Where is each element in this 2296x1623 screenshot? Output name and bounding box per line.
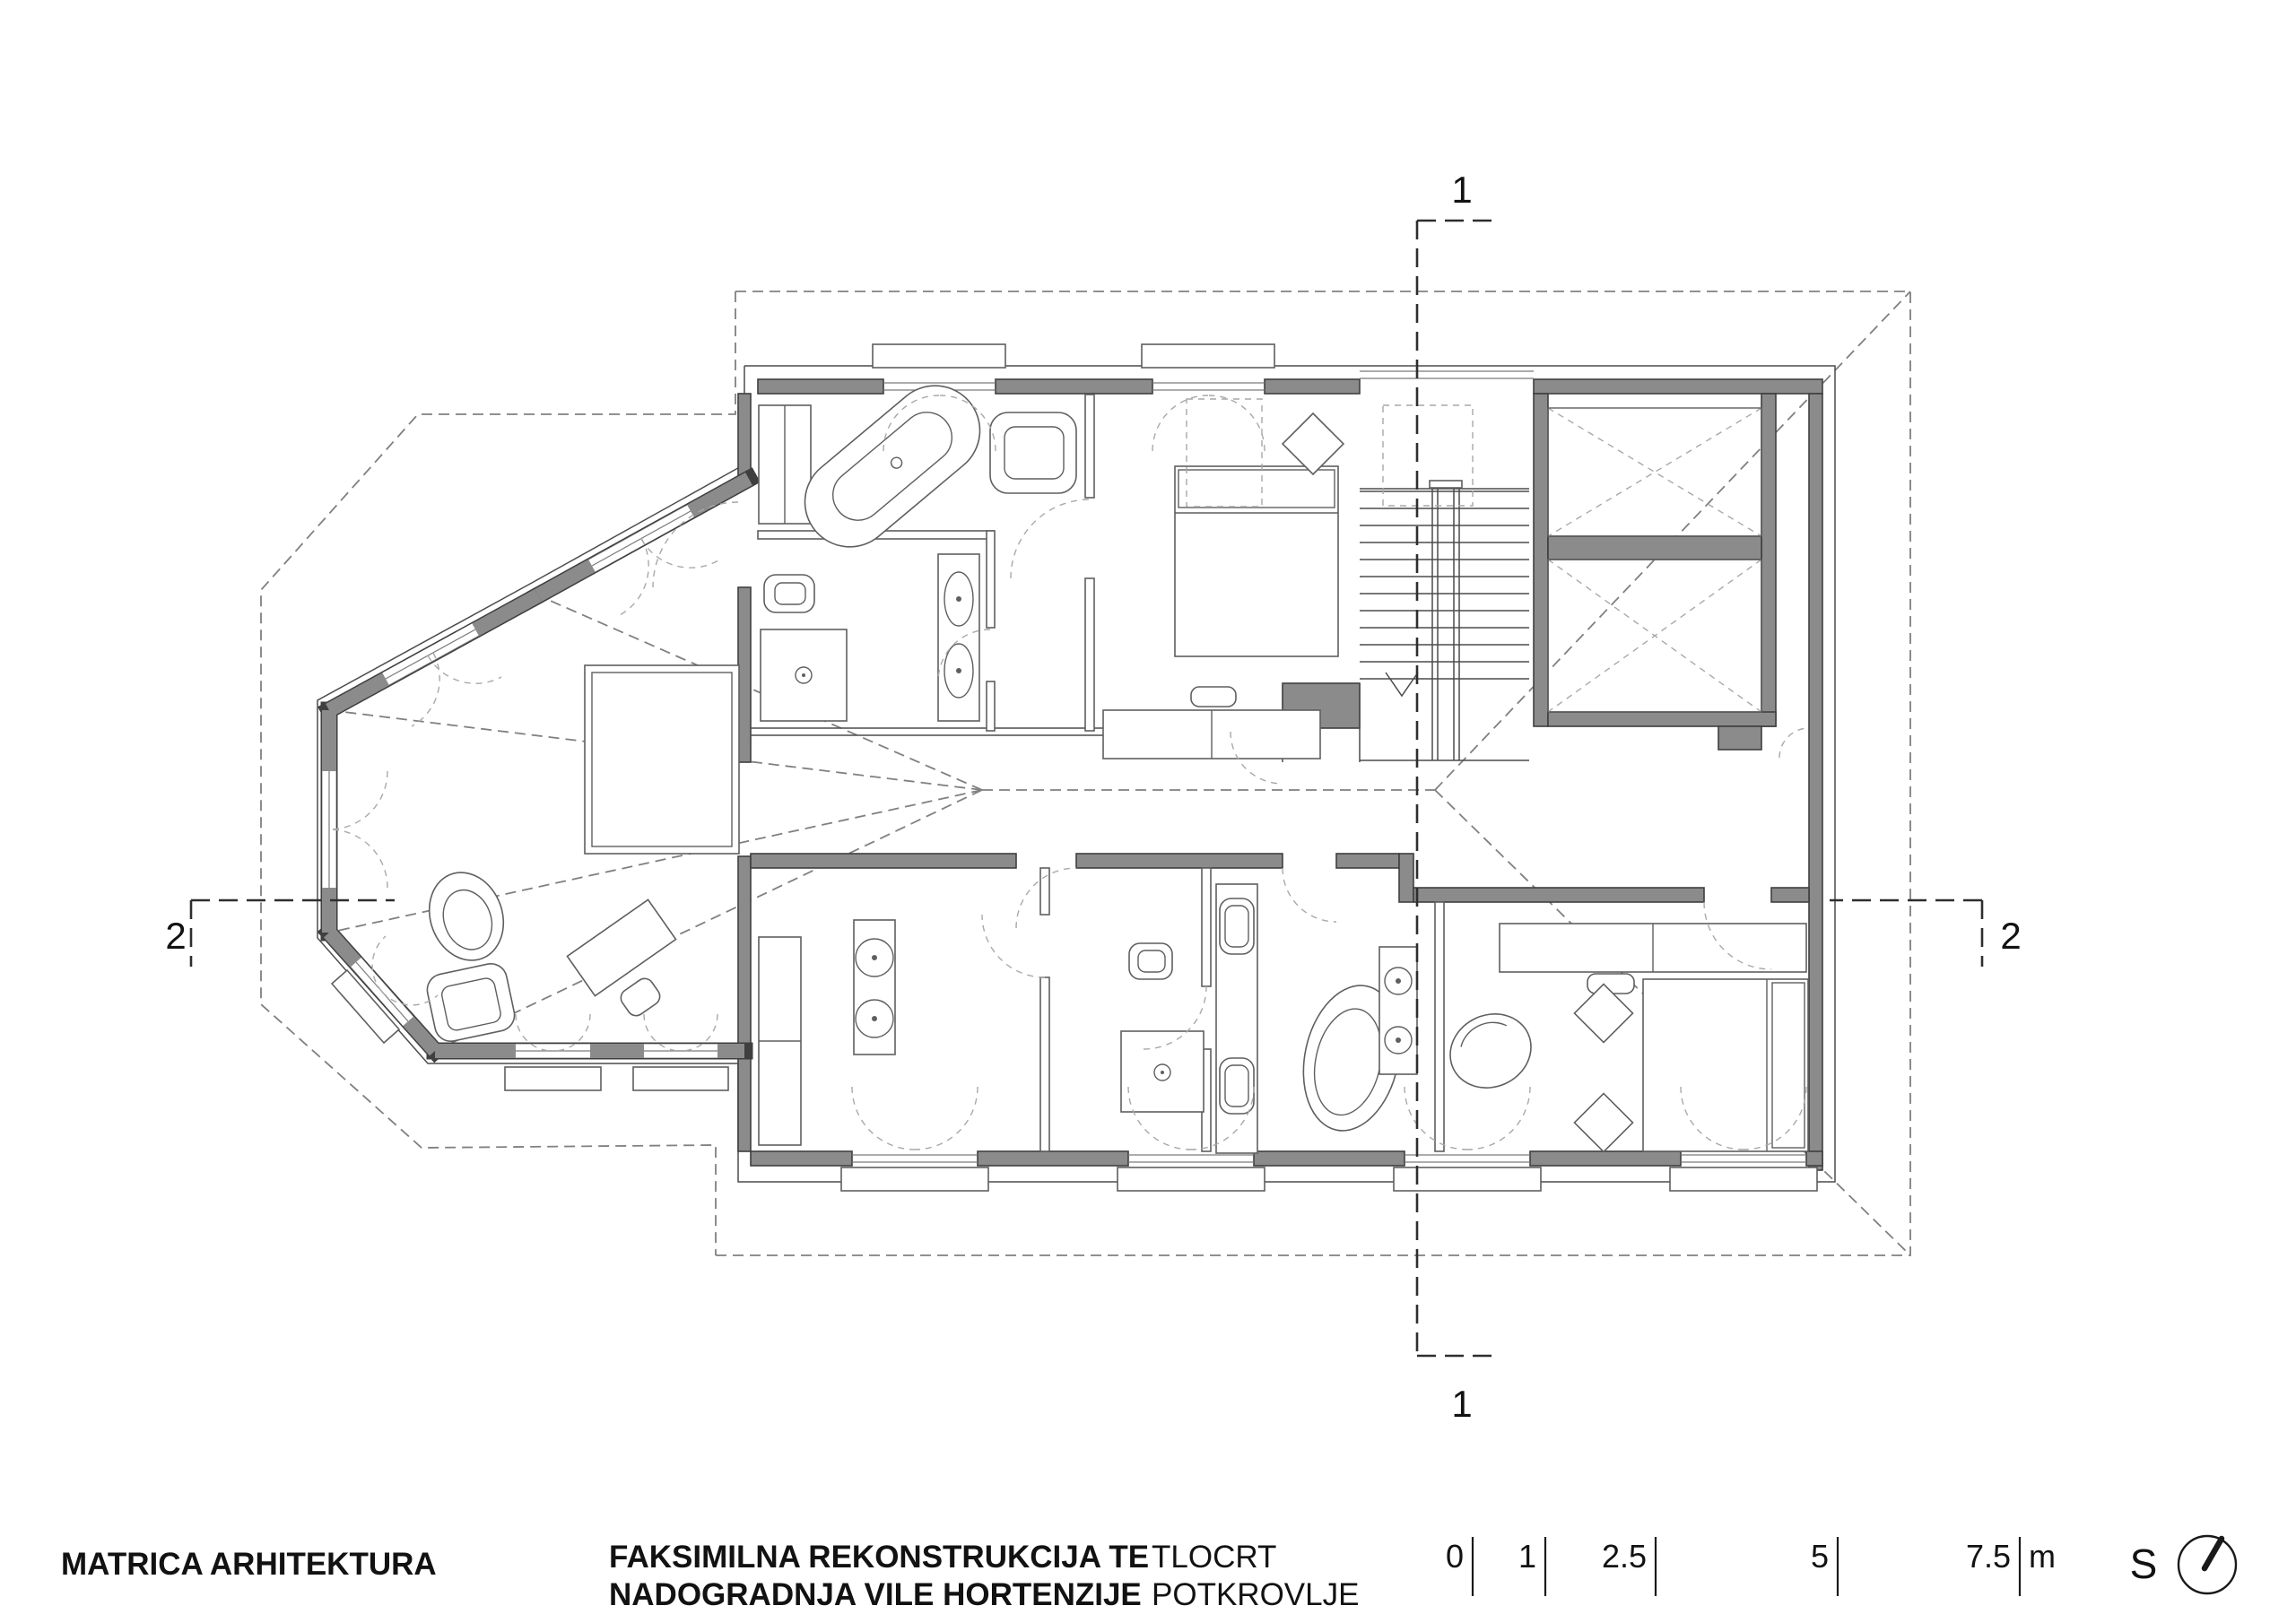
- project-title-line1: FAKSIMILNA REKONSTRUKCIJA TE: [609, 1540, 1149, 1575]
- drawing-sheet: 1 1 2 2 MATRICA ARHITEKTURA FAKSIMILNA R…: [0, 0, 2296, 1623]
- vanity-right: [1379, 947, 1417, 1074]
- scale-tick-label: 7.5: [1966, 1538, 2011, 1575]
- elevator-shafts: [1548, 408, 1761, 712]
- shower: [761, 629, 847, 721]
- north-label: S: [2130, 1541, 2158, 1587]
- armchair: [990, 412, 1076, 493]
- section-label-1-top: 1: [1451, 169, 1472, 211]
- scale-tick-label: 0: [1446, 1538, 1464, 1575]
- section-line-1: 1 1: [1417, 169, 1496, 1425]
- bed-room-b: [1175, 466, 1338, 656]
- scale-tick-3: 5: [1811, 1537, 1838, 1596]
- north-arrow: S: [2130, 1536, 2236, 1593]
- pouf-b3-bottom: [1574, 1093, 1632, 1151]
- scale-tick-1: 1: [1518, 1537, 1545, 1596]
- scale-tick-label: 5: [1811, 1538, 1829, 1575]
- project-title-line2: NADOGRADNJA VILE HORTENZIJE: [609, 1577, 1142, 1612]
- furniture: [417, 368, 1808, 1153]
- scale-tick-2: 2.5: [1602, 1537, 1656, 1596]
- door-swings: [329, 395, 1809, 1150]
- linen-closet: [759, 937, 801, 1145]
- floor-plan-canvas: 1 1 2 2 MATRICA ARHITEKTURA FAKSIMILNA R…: [0, 0, 2296, 1623]
- wc-counter: [1216, 884, 1257, 1153]
- scale-tick-label: 1: [1518, 1538, 1536, 1575]
- staircase: [1360, 405, 1529, 760]
- tilted-desk: [567, 899, 675, 995]
- vanity-two-round: [854, 920, 895, 1055]
- scale-tick-0: 0: [1446, 1537, 1473, 1596]
- section-label-1-bottom: 1: [1451, 1383, 1472, 1425]
- tilted-chair: [617, 975, 663, 1019]
- section-label-2-right: 2: [2000, 915, 2021, 957]
- toilet: [764, 575, 814, 612]
- compass-needle-icon: [2205, 1539, 2222, 1568]
- scale-unit: m: [2029, 1538, 2056, 1575]
- scale-tick-label: 2.5: [1602, 1538, 1647, 1575]
- scale-bar: 0 1 2.5 5 7.5 m: [1446, 1537, 2056, 1596]
- shower-2: [1121, 1031, 1204, 1112]
- vanity-double-oval: [938, 554, 979, 721]
- drawing-title-line2: POTKROVLJE: [1152, 1577, 1359, 1612]
- section-lines: 1 1 2 2: [165, 169, 2021, 1425]
- title-block: MATRICA ARHITEKTURA FAKSIMILNA REKONSTRU…: [61, 1536, 2236, 1612]
- drawing-title-line1: TLOCRT: [1152, 1540, 1276, 1575]
- swivel-chair: [1438, 1001, 1543, 1100]
- toilet-2: [1129, 943, 1172, 979]
- bed-bedroom3: [1643, 979, 1808, 1151]
- bed-bay-room: [585, 665, 739, 854]
- egg-chair: [417, 862, 515, 970]
- wardrobe: [759, 405, 811, 524]
- scale-tick-4: 7.5: [1966, 1537, 2020, 1596]
- firm-name: MATRICA ARHITEKTURA: [61, 1547, 437, 1582]
- section-label-2-left: 2: [165, 915, 186, 957]
- armchair-bay: [424, 960, 517, 1044]
- pouf: [1283, 413, 1344, 474]
